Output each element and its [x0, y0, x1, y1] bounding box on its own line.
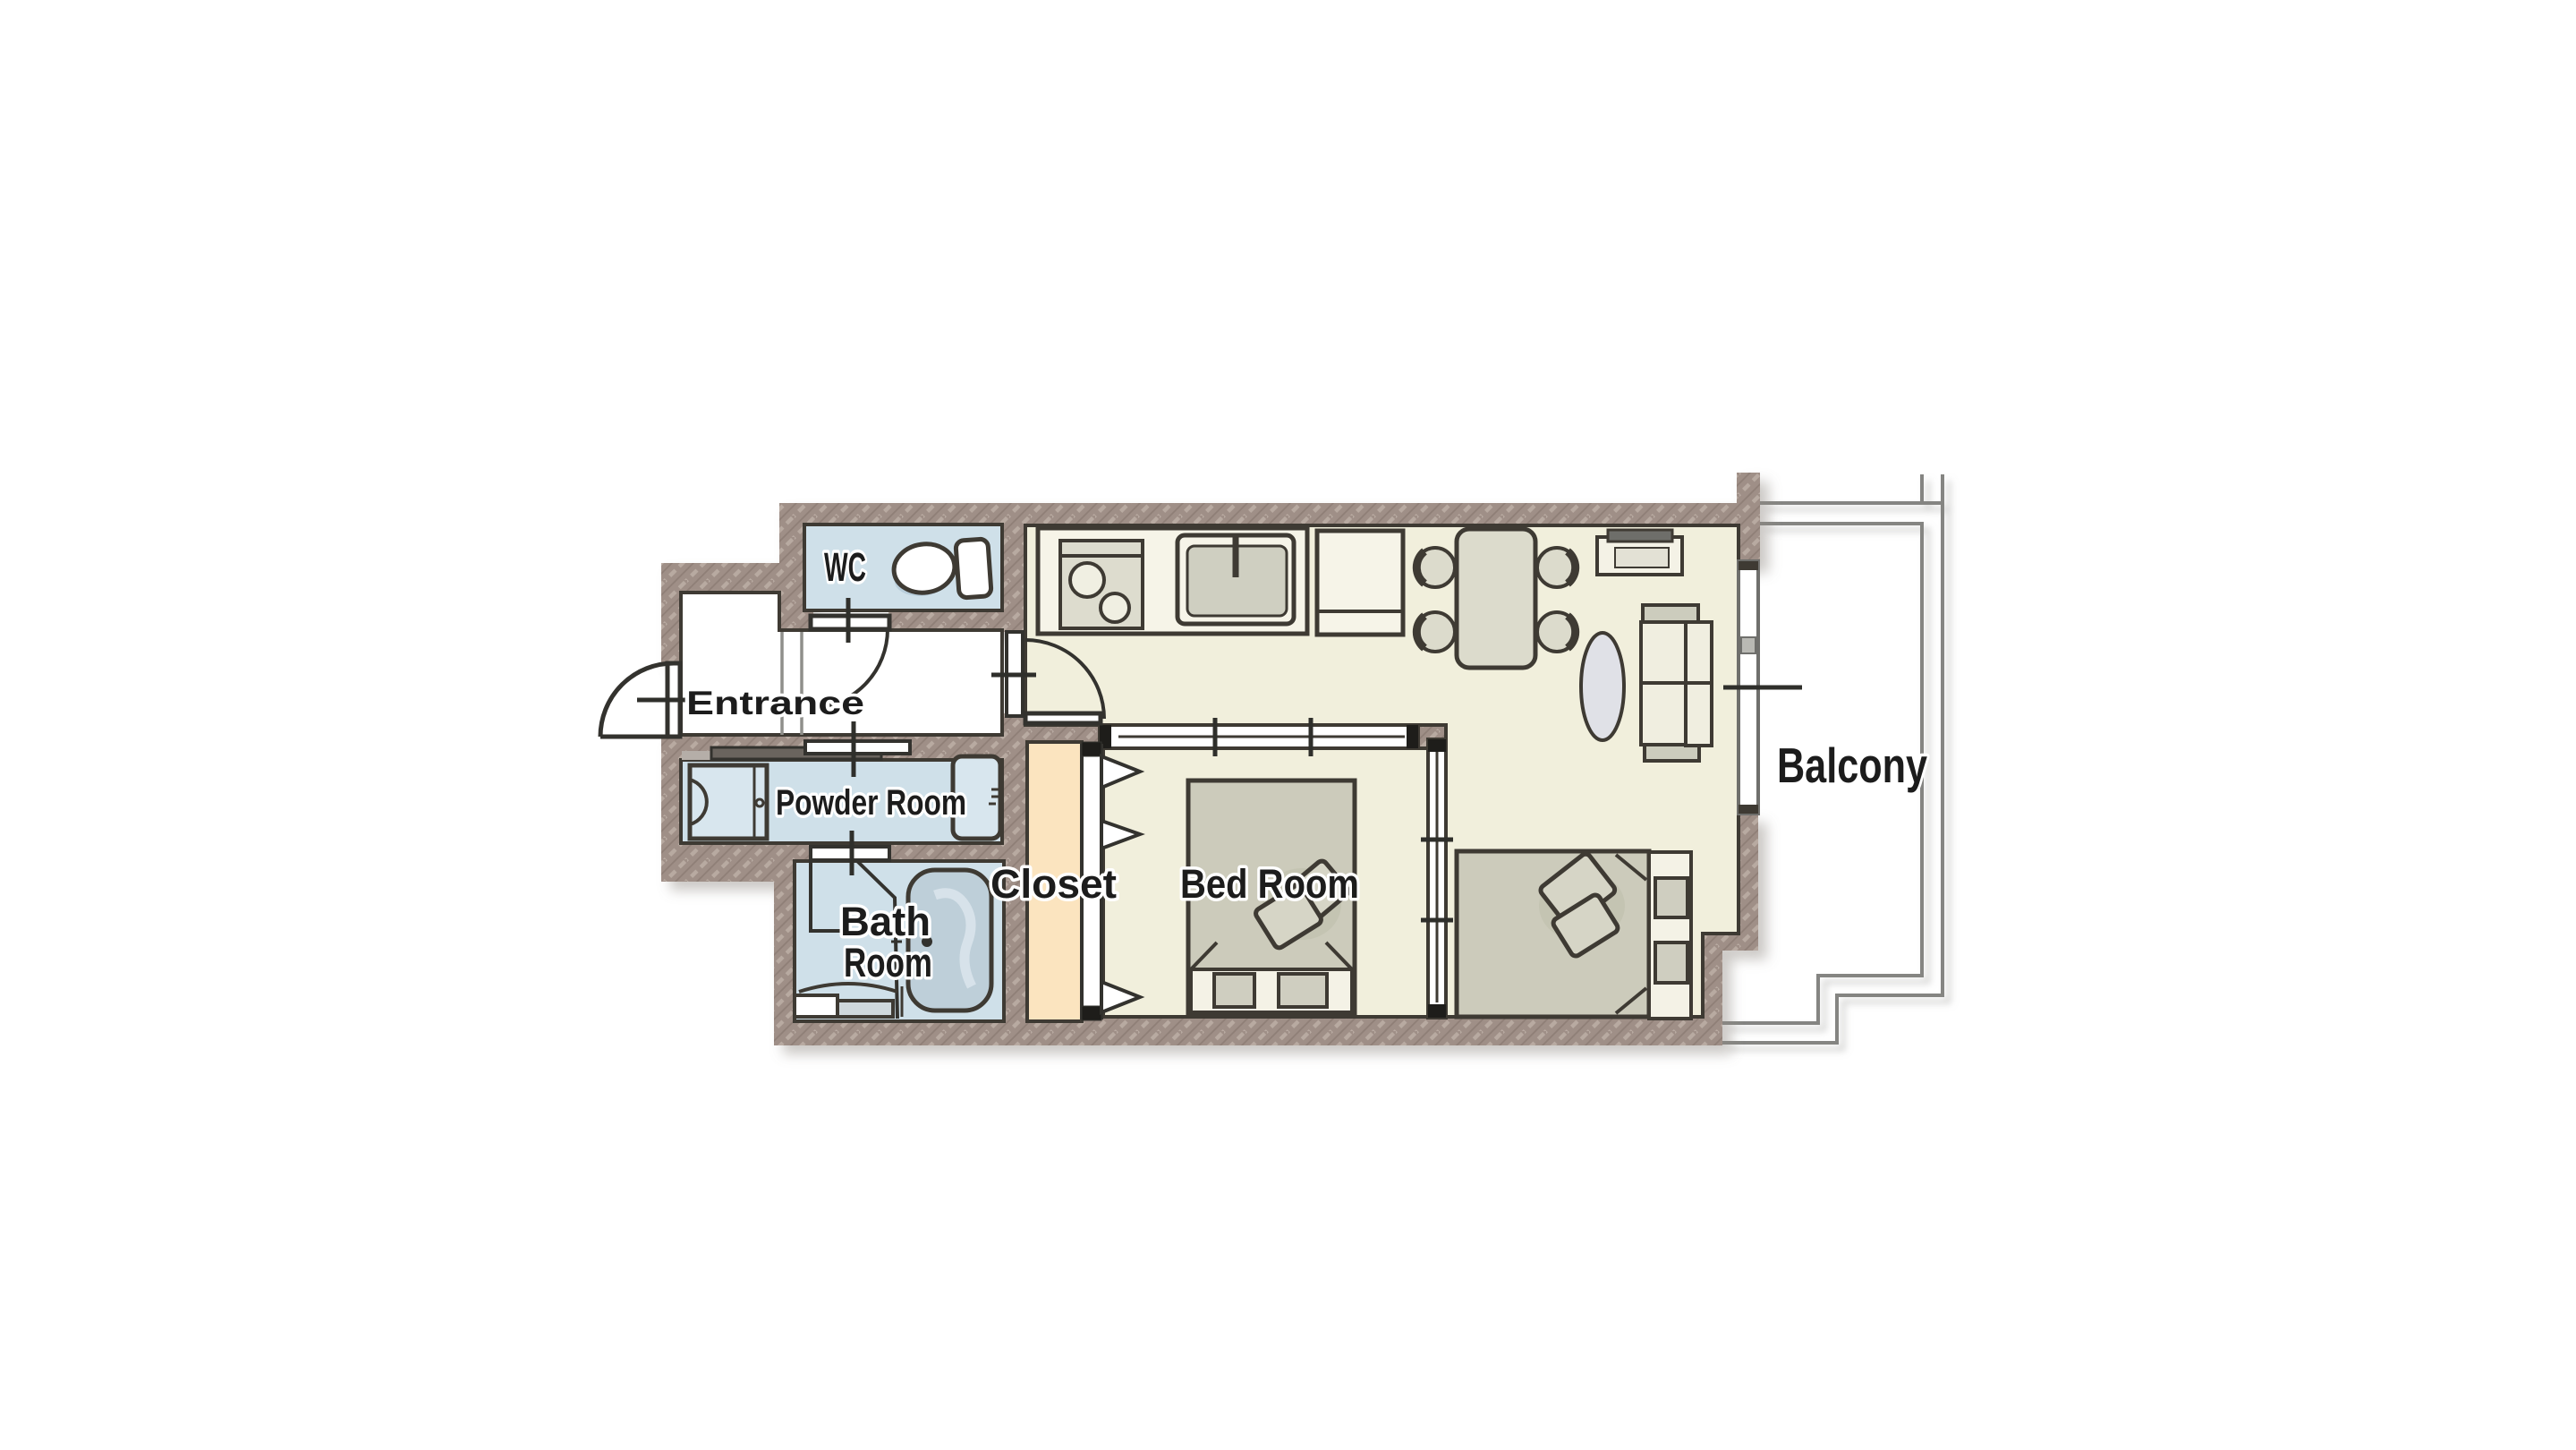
svg-text:Balcony: Balcony [1777, 738, 1927, 793]
svg-text:WC: WC [824, 544, 866, 590]
svg-text:Powder Room: Powder Room [776, 783, 966, 823]
svg-text:Bed Room: Bed Room [1180, 861, 1359, 907]
svg-text:Closet: Closet [990, 861, 1117, 907]
svg-text:Bath: Bath [840, 899, 931, 944]
svg-text:Entrance: Entrance [686, 685, 864, 721]
svg-text:Room: Room [844, 940, 932, 985]
